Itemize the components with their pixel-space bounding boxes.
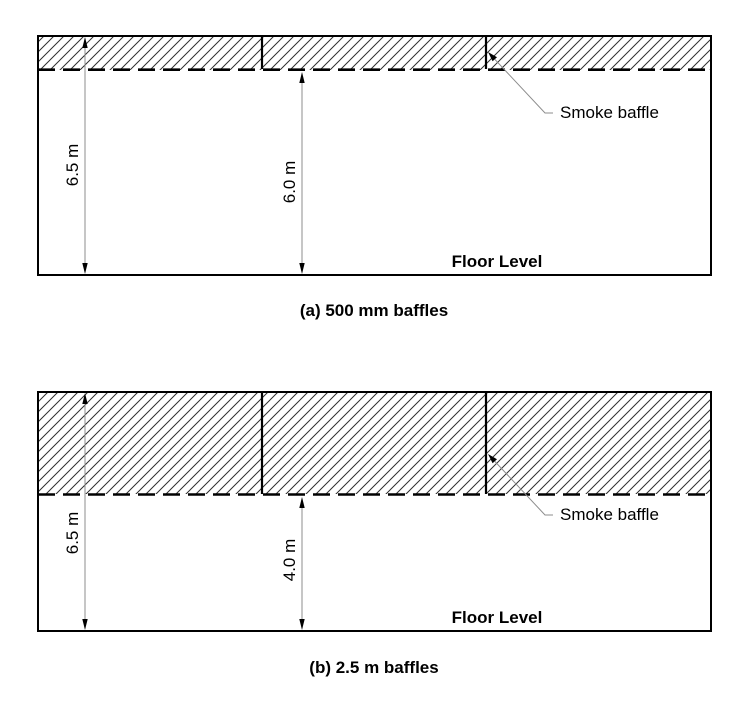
- arrow-down-icon: [82, 263, 87, 274]
- smoke-baffle-figure: 6.5 m 6.0 m Smoke baffle Floor Level (a)…: [0, 0, 750, 715]
- floor-level-label-b: Floor Level: [452, 608, 543, 627]
- arrow-down-icon: [82, 619, 87, 630]
- dimension-clear-height-a: 6.0 m: [280, 72, 305, 274]
- figure-canvas: 6.5 m 6.0 m Smoke baffle Floor Level (a)…: [0, 0, 750, 715]
- caption-b: (b) 2.5 m baffles: [309, 658, 438, 677]
- arrow-down-icon: [299, 263, 304, 274]
- dimension-clear-height-b: 4.0 m: [280, 497, 305, 630]
- dimension-label-overall-b: 6.5 m: [63, 512, 82, 555]
- arrow-up-icon: [299, 497, 304, 508]
- smoke-baffle-label-a: Smoke baffle: [560, 103, 659, 122]
- dimension-overall-height-a: 6.5 m: [63, 37, 88, 274]
- caption-a: (a) 500 mm baffles: [300, 301, 448, 320]
- room-outline-a: [38, 36, 711, 275]
- diagram-a: 6.5 m 6.0 m Smoke baffle Floor Level (a)…: [38, 36, 711, 320]
- diagram-b: 6.5 m 4.0 m Smoke baffle Floor Level (b)…: [38, 392, 711, 677]
- dimension-label-clear-a: 6.0 m: [280, 161, 299, 204]
- ceiling-hatch-zone-a: [38, 36, 711, 70]
- arrow-down-icon: [299, 619, 304, 630]
- ceiling-hatch-zone-b: [38, 392, 711, 494]
- dimension-label-overall-a: 6.5 m: [63, 144, 82, 187]
- smoke-baffle-label-b: Smoke baffle: [560, 505, 659, 524]
- arrow-up-icon: [299, 72, 304, 83]
- dimension-label-clear-b: 4.0 m: [280, 539, 299, 582]
- floor-level-label-a: Floor Level: [452, 252, 543, 271]
